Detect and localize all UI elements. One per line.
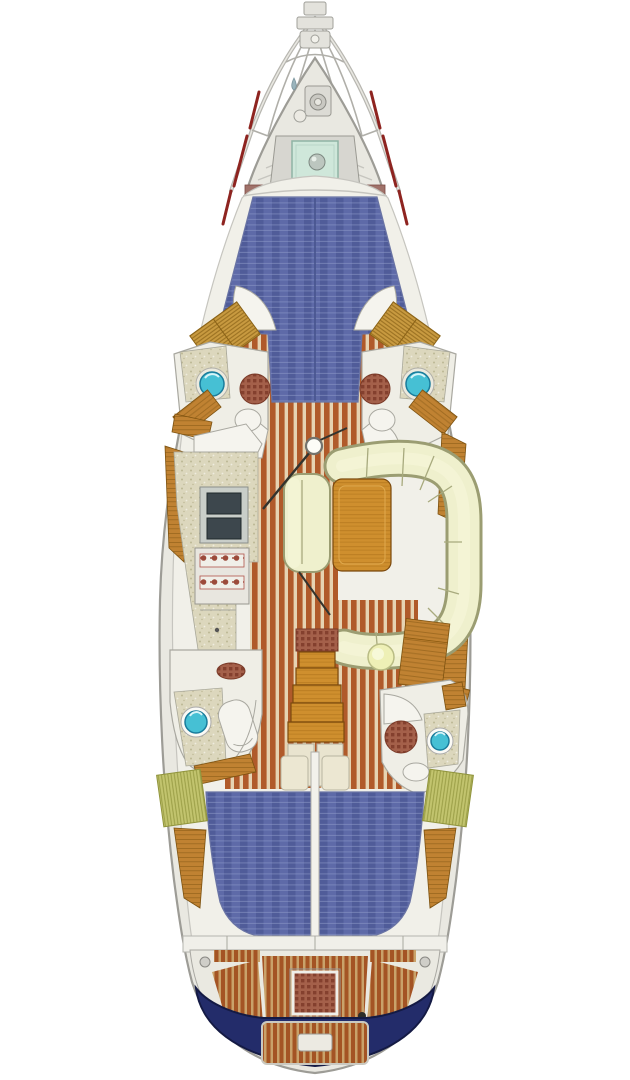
pillow-stbd [322, 756, 349, 790]
masthead-box-1 [304, 2, 326, 15]
hatch-handle-hl [312, 157, 317, 162]
stair-grate [296, 629, 338, 651]
nav-desk [398, 619, 450, 690]
table-top [333, 479, 391, 571]
pillow-port [281, 756, 308, 790]
stove-burner-row-2 [200, 576, 244, 589]
mast-circle [306, 438, 322, 454]
shower-grate [385, 721, 417, 753]
wood-corner [442, 682, 466, 710]
toilet [403, 763, 429, 781]
step-1 [299, 652, 335, 668]
salon-chair [284, 474, 330, 572]
masthead-sheave [311, 35, 319, 43]
shower-grate [217, 663, 245, 679]
chair-back [288, 478, 300, 568]
cockpit-grate-table [293, 972, 337, 1014]
step-4 [291, 703, 343, 722]
transom-gate [298, 1034, 332, 1051]
counter-fitting [215, 628, 219, 632]
deck-fitting-round [294, 110, 306, 122]
galley-sink-1 [207, 493, 241, 514]
mast-head-fittings [297, 2, 333, 48]
winch-port [200, 957, 210, 967]
shower-grate [240, 374, 270, 404]
masthead-box-2 [297, 17, 333, 29]
toilet [369, 409, 395, 431]
galley-sink-2 [207, 518, 241, 539]
shower-grate [360, 374, 390, 404]
hanging-locker-stbd-aft [423, 769, 474, 827]
centerline-bulkhead [311, 752, 319, 938]
step-5 [288, 722, 344, 742]
windlass-cap [315, 99, 322, 106]
hatch-handle [309, 154, 325, 170]
hanging-locker-port-aft [157, 769, 208, 827]
sink-bowl [431, 732, 449, 750]
salon-table [333, 479, 391, 571]
deck-fitting-drop [292, 78, 297, 90]
step-2 [296, 668, 338, 685]
seat-port-fwd [214, 950, 260, 962]
winch-stbd [420, 957, 430, 967]
floor-plan-svg [0, 0, 630, 1080]
stove-burner-row-1 [200, 554, 244, 567]
seat-stbd-fwd [370, 950, 416, 962]
step-3 [293, 685, 341, 703]
sink-bowl [185, 711, 207, 733]
nav-stool-highlight [372, 648, 384, 660]
yacht-floor-plan [0, 0, 630, 1080]
